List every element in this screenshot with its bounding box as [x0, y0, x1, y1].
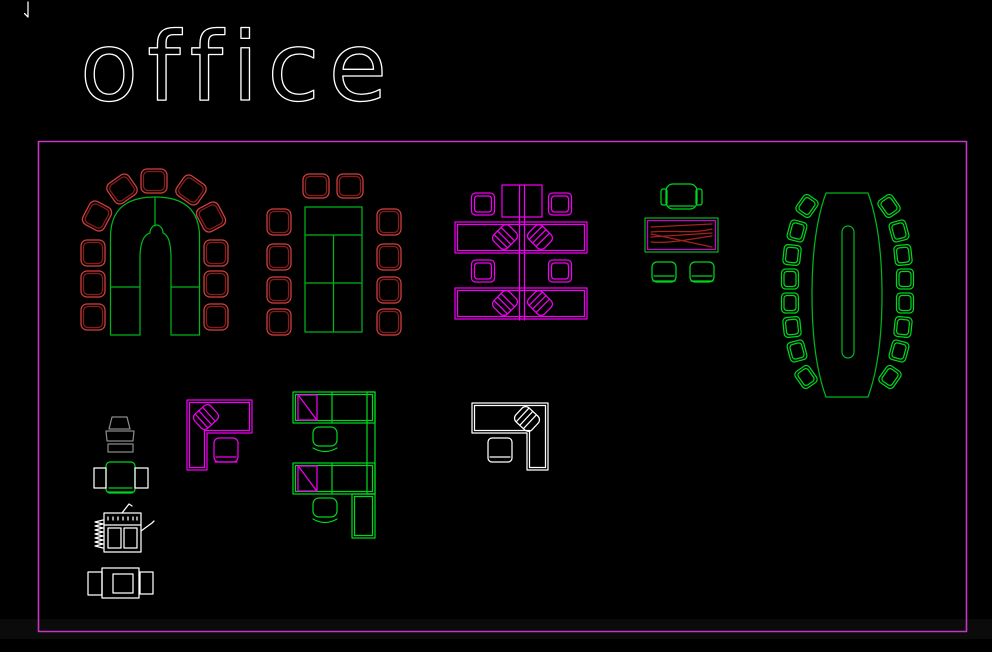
green-chair[interactable]: [894, 316, 913, 338]
magenta-tilted-chair[interactable]: [526, 289, 555, 318]
magenta-chair[interactable]: [549, 260, 572, 282]
task-chair[interactable]: [313, 498, 337, 523]
desk-surface: [455, 222, 587, 253]
green-chair[interactable]: [877, 364, 902, 390]
red-chair[interactable]: [267, 244, 291, 270]
chair-arm: [135, 468, 148, 488]
magenta-chair[interactable]: [549, 193, 572, 215]
cluster-workstation-block[interactable]: [455, 185, 587, 320]
task-chair[interactable]: [313, 427, 337, 452]
red-chair[interactable]: [80, 199, 113, 233]
desk-surface-inner: [458, 291, 585, 317]
printer-block[interactable]: [88, 568, 153, 598]
red-chair[interactable]: [377, 244, 401, 270]
red-chair[interactable]: [267, 309, 291, 335]
magenta-l-desk-block[interactable]: [187, 400, 252, 470]
boat-conference-table-block[interactable]: [782, 193, 914, 397]
spine-top-panel: [502, 185, 542, 217]
green-chair[interactable]: [783, 244, 802, 266]
feed-arm: [122, 504, 132, 513]
red-chair[interactable]: [81, 304, 105, 330]
chair-front-edge: [108, 488, 133, 492]
green-chair[interactable]: [782, 269, 799, 289]
copier-machine-block[interactable]: [95, 504, 154, 552]
red-chair[interactable]: [204, 240, 228, 266]
l-desk-outline: [472, 403, 548, 470]
guest-chair[interactable]: [690, 262, 714, 282]
scanline-artifact: [0, 619, 992, 639]
paper-coil: [95, 520, 103, 548]
magenta-tilted-chair[interactable]: [191, 403, 220, 432]
green-chair[interactable]: [888, 219, 910, 243]
red-chair[interactable]: [377, 309, 401, 335]
gray-side-chair-block[interactable]: [106, 417, 134, 452]
guest-chair[interactable]: [652, 262, 676, 282]
executive-chair[interactable]: [661, 184, 702, 209]
green-chair[interactable]: [876, 193, 901, 219]
red-chair[interactable]: [267, 209, 291, 235]
red-chair[interactable]: [204, 304, 228, 330]
rect-table: [305, 207, 362, 332]
green-chair[interactable]: [888, 339, 910, 363]
double-workstation-block[interactable]: [293, 392, 375, 538]
red-chair[interactable]: [377, 277, 401, 303]
red-chair[interactable]: [81, 240, 105, 266]
magenta-chair[interactable]: [472, 260, 495, 282]
red-chair[interactable]: [204, 271, 228, 297]
green-chair[interactable]: [794, 193, 819, 219]
wood-grain-lines: [651, 224, 712, 247]
desk-surface-inner: [458, 225, 585, 251]
green-chair[interactable]: [783, 316, 802, 338]
green-armchair-block[interactable]: [94, 462, 148, 493]
red-chair[interactable]: [377, 209, 401, 235]
red-chair[interactable]: [173, 173, 208, 208]
monitor: [298, 466, 317, 491]
green-chair[interactable]: [786, 339, 808, 363]
green-chair[interactable]: [897, 293, 914, 313]
monitor: [298, 395, 317, 420]
red-chair[interactable]: [337, 174, 363, 198]
green-chair[interactable]: [897, 269, 914, 289]
white-tilted-chair[interactable]: [512, 405, 541, 434]
green-chair[interactable]: [894, 244, 913, 266]
green-chair[interactable]: [793, 364, 818, 390]
u-shape-conference-table-block[interactable]: [80, 169, 228, 335]
magenta-chair[interactable]: [472, 193, 495, 215]
chair-arm: [94, 468, 106, 488]
magenta-tilted-chair[interactable]: [491, 223, 520, 252]
u-shape-table: [111, 197, 200, 335]
cad-drawing[interactable]: office: [0, 0, 992, 652]
l-desk-inner: [190, 403, 250, 468]
l-desk-outline: [187, 400, 252, 470]
magenta-chair[interactable]: [214, 438, 238, 462]
boat-table: [812, 193, 882, 397]
magenta-tilted-chair[interactable]: [526, 223, 555, 252]
white-l-desk-block[interactable]: [472, 403, 548, 470]
rect-conference-table-block[interactable]: [267, 174, 401, 335]
l-desk-inner: [475, 406, 546, 468]
output-arm: [141, 521, 154, 531]
executive-desk-block[interactable]: [645, 184, 718, 282]
red-chair[interactable]: [267, 277, 291, 303]
desk-surface: [455, 288, 587, 319]
cad-viewport[interactable]: office: [0, 0, 992, 652]
magenta-tilted-chair[interactable]: [491, 289, 520, 318]
table-center-runner: [842, 226, 854, 358]
title-tick-mark: [25, 2, 29, 17]
white-chair[interactable]: [488, 438, 512, 462]
green-chair[interactable]: [786, 219, 808, 243]
green-chair[interactable]: [782, 293, 799, 313]
drawing-title: office: [80, 13, 396, 123]
red-chair[interactable]: [141, 169, 167, 193]
red-chair[interactable]: [81, 271, 105, 297]
red-chair[interactable]: [303, 174, 329, 198]
red-chair[interactable]: [104, 172, 139, 207]
